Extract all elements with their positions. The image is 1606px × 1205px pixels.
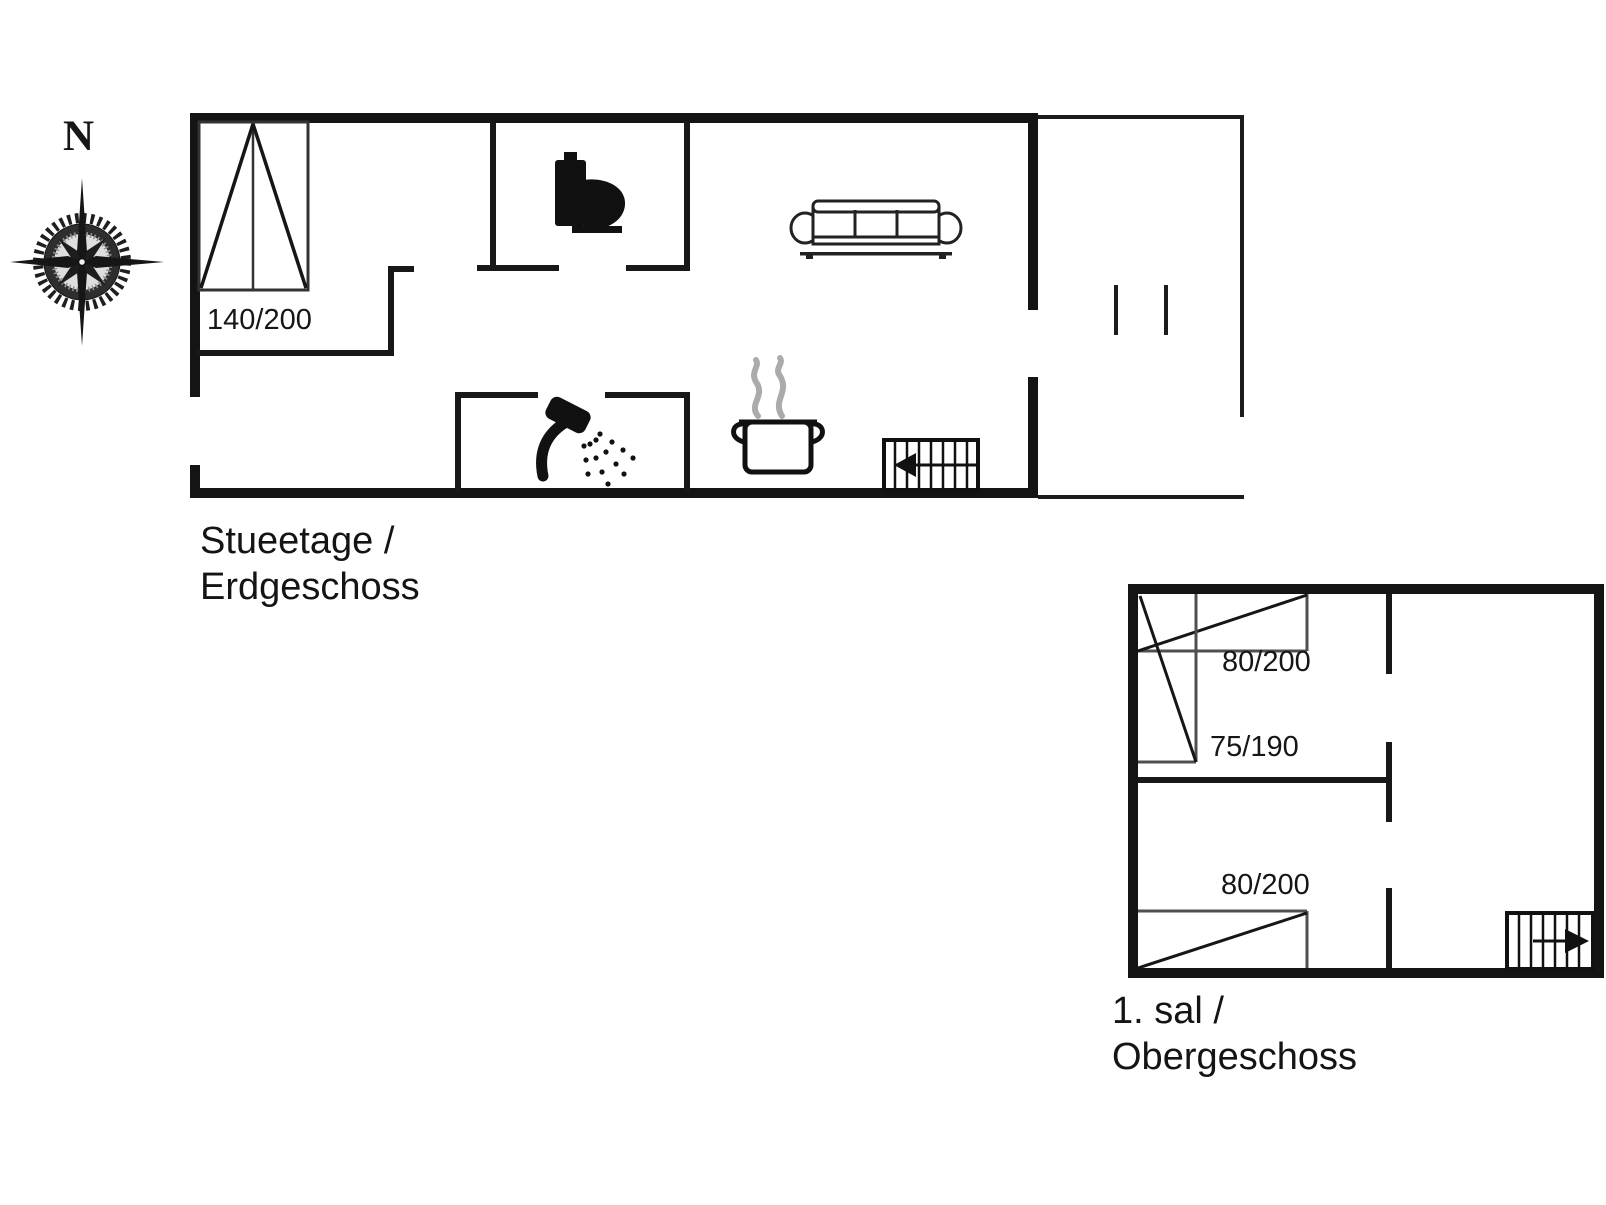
shower-icon [528,398,640,490]
uf-caption: 1. sal / Obergeschoss [1112,988,1357,1080]
gf-shower-wall-left [455,392,461,492]
gf-wall-right-upper [1028,113,1038,310]
uf-bed-size-label-top: 80/200 [1222,646,1311,679]
annex-door-post-right [1164,285,1168,335]
gf-bedroom-wall-bottom [196,350,393,356]
uf-caption-line1: 1. sal / [1112,988,1357,1034]
gf-shower-wall-right [684,392,690,492]
annex-door-post-left [1114,285,1118,335]
stairs-arrow-left-icon [882,438,980,492]
gf-wall-top [190,113,1038,123]
uf-caption-line2: Obergeschoss [1112,1034,1357,1080]
uf-bed-size-label-middle: 75/190 [1210,731,1299,764]
gf-caption: Stueetage / Erdgeschoss [200,518,420,610]
annex-line-top [1038,115,1244,119]
floorplan-canvas: N [0,0,1606,1205]
gf-bath-wall-bottom-left [477,265,559,271]
gf-caption-line2: Erdgeschoss [200,564,420,610]
gf-shower-wall-top-left [455,392,538,398]
double-bed-icon [197,120,310,292]
gf-bath-wall-bottom-right [626,265,690,271]
annex-line-right [1240,115,1244,417]
cooking-pot-icon [718,358,836,476]
toilet-icon [550,152,632,237]
compass-north-label: N [63,112,94,161]
gf-wall-right-lower [1028,377,1038,498]
gf-bed-size-label: 140/200 [207,304,312,337]
stairs-arrow-right-icon [1505,911,1595,971]
sofa-icon [788,196,964,266]
compass-rose-icon [8,168,168,356]
uf-bed-size-label-bottom: 80/200 [1221,869,1310,902]
gf-bath-wall-right [684,121,690,271]
gf-bath-wall-left [490,121,496,271]
gf-bedroom-wall-right [388,266,394,356]
steam-icon [754,358,783,416]
gf-caption-line1: Stueetage / [200,518,420,564]
gf-bedroom-wall-stub [388,266,414,272]
annex-line-bottom [1038,495,1244,499]
